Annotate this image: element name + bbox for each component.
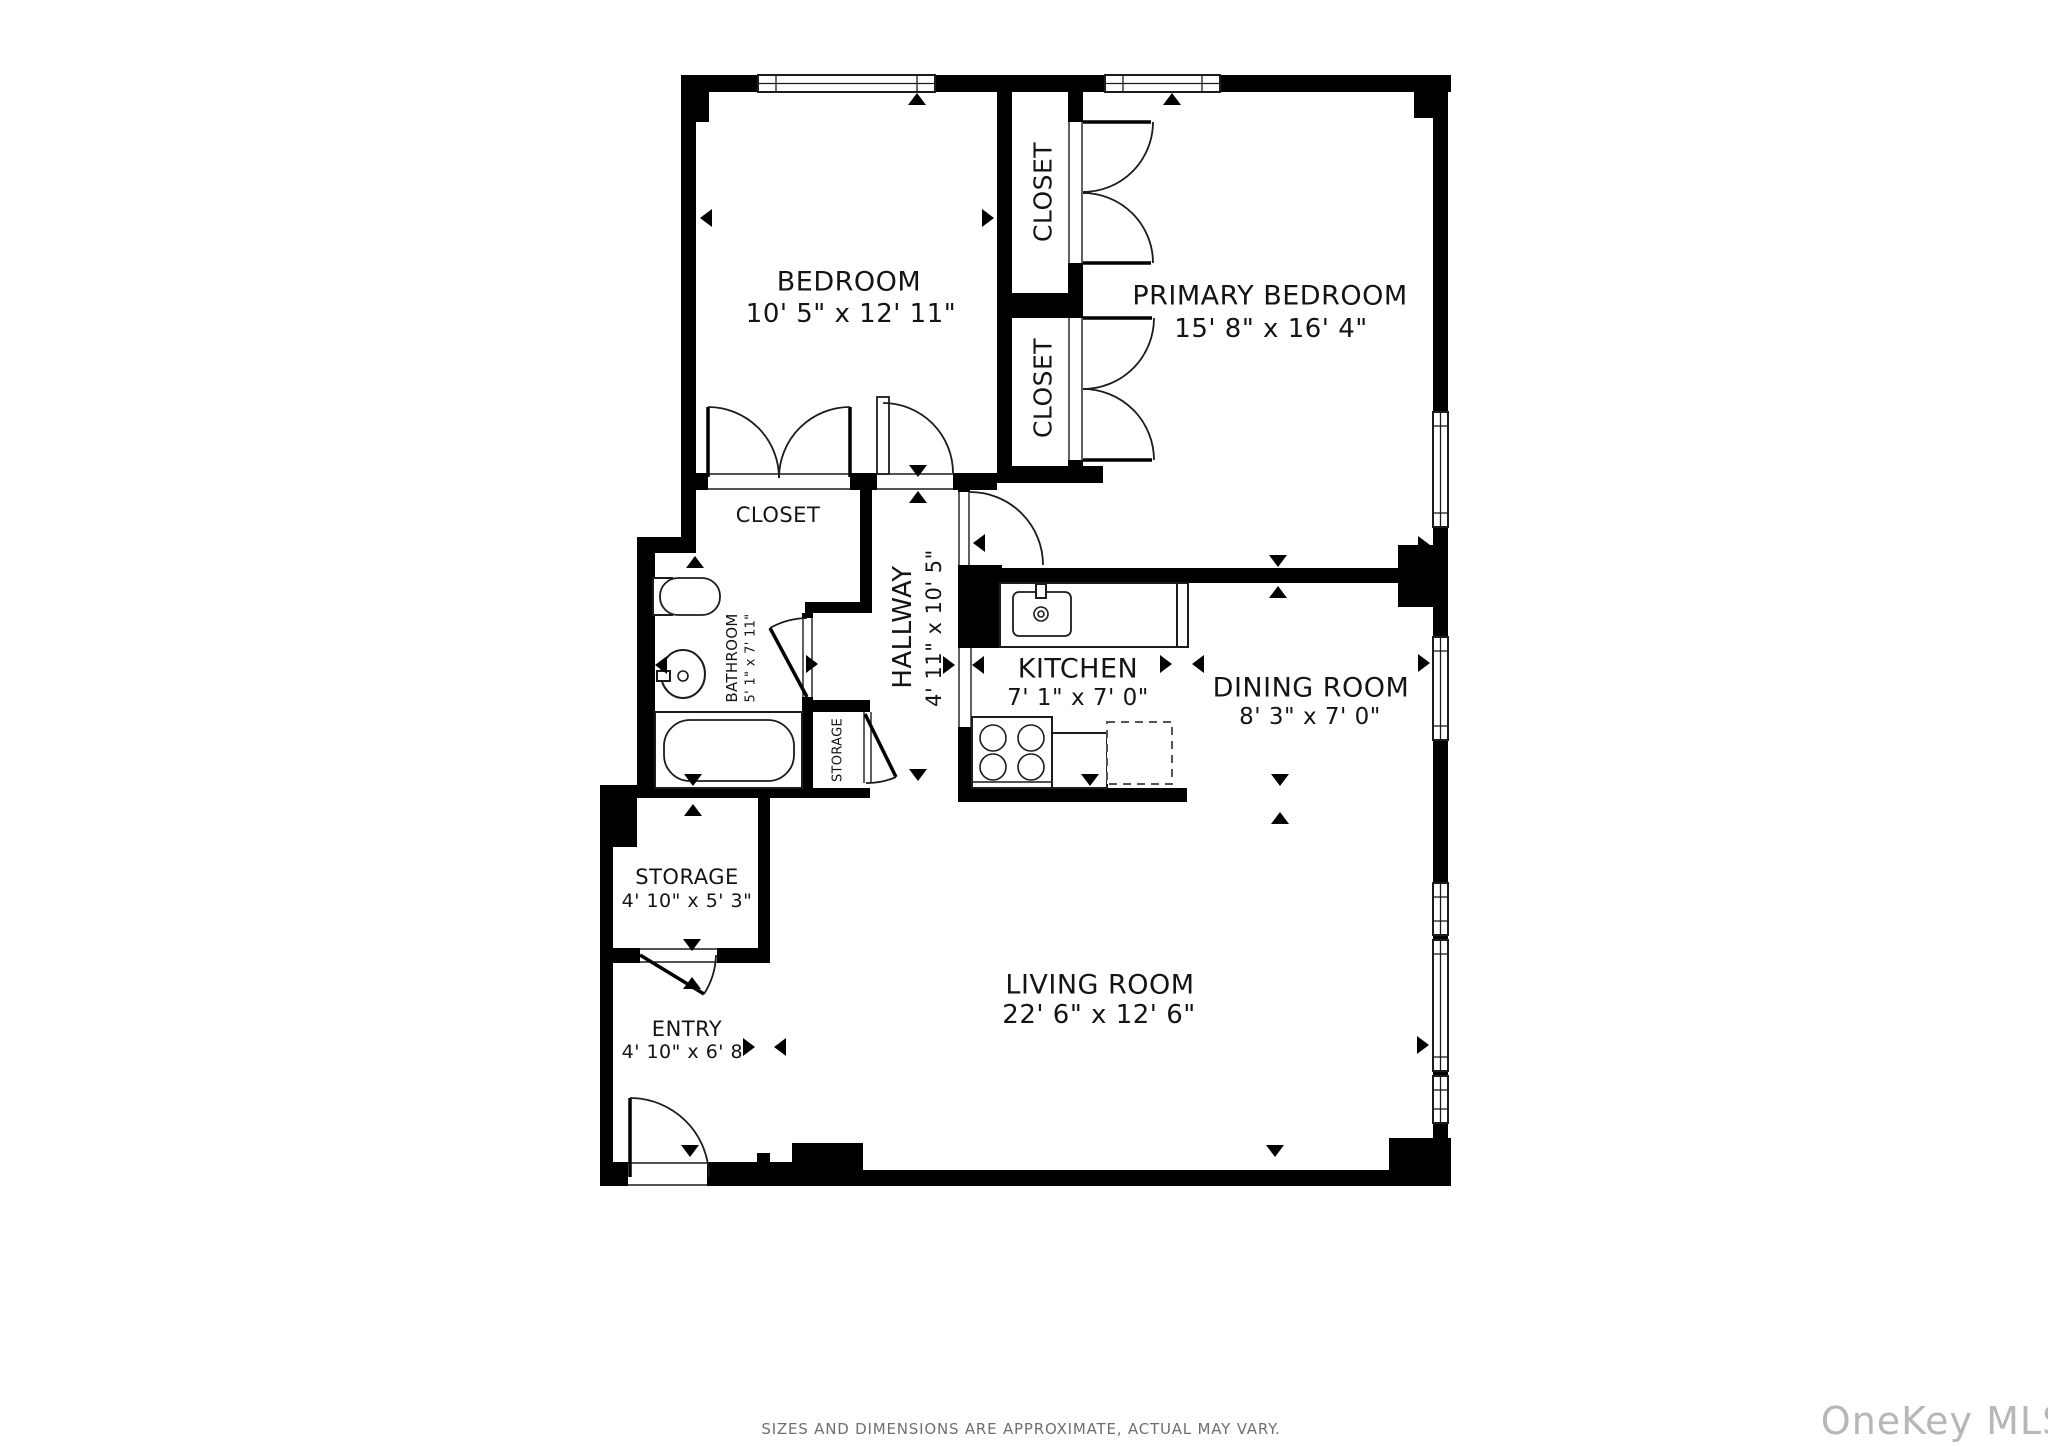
wall <box>1433 92 1448 412</box>
wall <box>860 483 872 602</box>
direction-marker <box>686 556 704 568</box>
wall <box>681 473 708 490</box>
wall <box>637 788 870 798</box>
wall <box>805 602 872 613</box>
wall <box>1398 545 1434 607</box>
bathtub-basin <box>664 720 794 781</box>
room-label-bathroom: BATHROOM <box>723 613 741 702</box>
direction-marker <box>908 93 926 105</box>
wall <box>696 92 709 122</box>
room-label-storage: STORAGE <box>635 865 738 889</box>
kitchen-counter-2 <box>1052 733 1107 788</box>
wall <box>958 788 1187 802</box>
door-arc <box>970 492 1043 565</box>
wall <box>805 700 870 712</box>
wall <box>1012 293 1068 318</box>
room-dims-storage: 4' 10" x 5' 3" <box>622 891 753 913</box>
room-dims-entry: 4' 10" x 6' 8" <box>622 1042 753 1064</box>
burner <box>980 754 1006 780</box>
burner <box>1018 754 1044 780</box>
room-label-closet-hall: CLOSET <box>736 503 821 527</box>
burner <box>980 725 1006 751</box>
direction-marker <box>982 209 994 227</box>
direction-marker <box>1417 1036 1429 1054</box>
door-arc <box>883 403 953 473</box>
direction-marker <box>1192 655 1204 673</box>
door-arc <box>1083 193 1153 263</box>
disclaimer-text: SIZES AND DIMENSIONS ARE APPROXIMATE, AC… <box>761 1420 1280 1438</box>
door-opening <box>958 648 972 727</box>
floorplan-drawing <box>0 0 2048 1447</box>
room-label-bedroom: BEDROOM <box>777 266 921 297</box>
direction-marker <box>700 209 712 227</box>
wall <box>613 948 640 963</box>
wall <box>600 847 613 1186</box>
direction-marker <box>972 656 984 674</box>
wall <box>1068 92 1083 122</box>
wall <box>958 727 972 798</box>
room-dims-kitchen: 7' 1" x 7' 0" <box>1007 685 1149 711</box>
wall <box>600 785 637 847</box>
wall <box>958 483 970 492</box>
floorplan-page: BEDROOM 10' 5" x 12' 11" PRIMARY BEDROOM… <box>0 0 2048 1447</box>
door-opening <box>958 492 970 565</box>
direction-marker <box>1266 1145 1284 1157</box>
direction-marker <box>1269 586 1287 598</box>
room-dims-bedroom: 10' 5" x 12' 11" <box>746 300 956 330</box>
wall <box>757 1153 770 1170</box>
direction-marker <box>1163 93 1181 105</box>
wall <box>681 92 696 537</box>
direction-marker <box>1271 812 1289 824</box>
bathroom-faucet <box>657 671 670 681</box>
room-label-hallway: HALLWAY <box>888 565 918 688</box>
room-label-living-room: LIVING ROOM <box>1005 969 1194 1000</box>
door-arc <box>708 407 779 478</box>
toilet-bowl <box>660 578 720 615</box>
room-label-closet-2: CLOSET <box>1029 338 1058 438</box>
room-label-entry: ENTRY <box>652 1017 722 1041</box>
wall <box>997 466 1103 483</box>
direction-marker <box>774 1038 786 1056</box>
door-opening <box>877 473 953 490</box>
door-opening <box>1068 122 1083 263</box>
room-dims-dining-room: 8' 3" x 7' 0" <box>1239 704 1381 730</box>
room-label-kitchen: KITCHEN <box>1018 653 1139 684</box>
kitchen-faucet <box>1036 584 1046 598</box>
direction-marker <box>973 534 985 552</box>
door-arc <box>1083 318 1154 389</box>
wall <box>802 697 813 798</box>
direction-marker <box>909 769 927 781</box>
wall <box>792 1143 863 1186</box>
wall <box>1433 527 1448 637</box>
direction-marker <box>909 491 927 503</box>
door-arc <box>1083 122 1153 192</box>
wall <box>1389 1138 1451 1186</box>
dishwasher <box>1107 722 1172 784</box>
room-label-primary-bedroom: PRIMARY BEDROOM <box>1132 280 1407 311</box>
room-dims-living-room: 22' 6" x 12' 6" <box>1002 1001 1195 1031</box>
watermark-onekey-mls: OneKey MLS <box>1821 1399 2048 1443</box>
wall <box>970 568 1398 583</box>
door-arc <box>779 407 850 478</box>
door-arc <box>770 618 807 628</box>
direction-marker <box>1418 654 1430 672</box>
wall <box>637 537 696 553</box>
burner <box>1018 725 1044 751</box>
wall <box>1068 263 1083 318</box>
room-label-dining-room: DINING ROOM <box>1213 672 1410 703</box>
direction-marker <box>684 804 702 816</box>
wall <box>717 948 770 963</box>
room-dims-bathroom: 5' 1" x 7' 11" <box>744 614 759 703</box>
door-leaf <box>877 397 889 474</box>
wall <box>997 92 1012 473</box>
door-arc <box>1083 389 1154 460</box>
wall <box>1414 92 1433 118</box>
door-leaf <box>770 628 807 697</box>
counter-end <box>1177 583 1188 647</box>
door-opening <box>1068 318 1083 460</box>
room-dims-hallway: 4' 11" x 10' 5" <box>922 549 946 707</box>
room-dims-primary-bedroom: 15' 8" x 16' 4" <box>1174 315 1367 345</box>
wall <box>1433 740 1448 883</box>
direction-marker <box>1160 655 1172 673</box>
wall <box>600 1162 628 1186</box>
direction-marker <box>1269 555 1287 567</box>
direction-marker <box>681 1145 699 1157</box>
wall <box>958 565 1002 648</box>
room-label-storage-closet: STORAGE <box>831 718 846 782</box>
room-label-closet-1: CLOSET <box>1029 142 1058 242</box>
bathroom-drain <box>678 671 688 681</box>
wall <box>758 798 770 963</box>
wall <box>707 1162 792 1186</box>
kitchen-drain-dot <box>1038 611 1044 617</box>
direction-marker <box>1271 774 1289 786</box>
wall <box>863 1170 1389 1186</box>
door-opening <box>628 1162 707 1186</box>
